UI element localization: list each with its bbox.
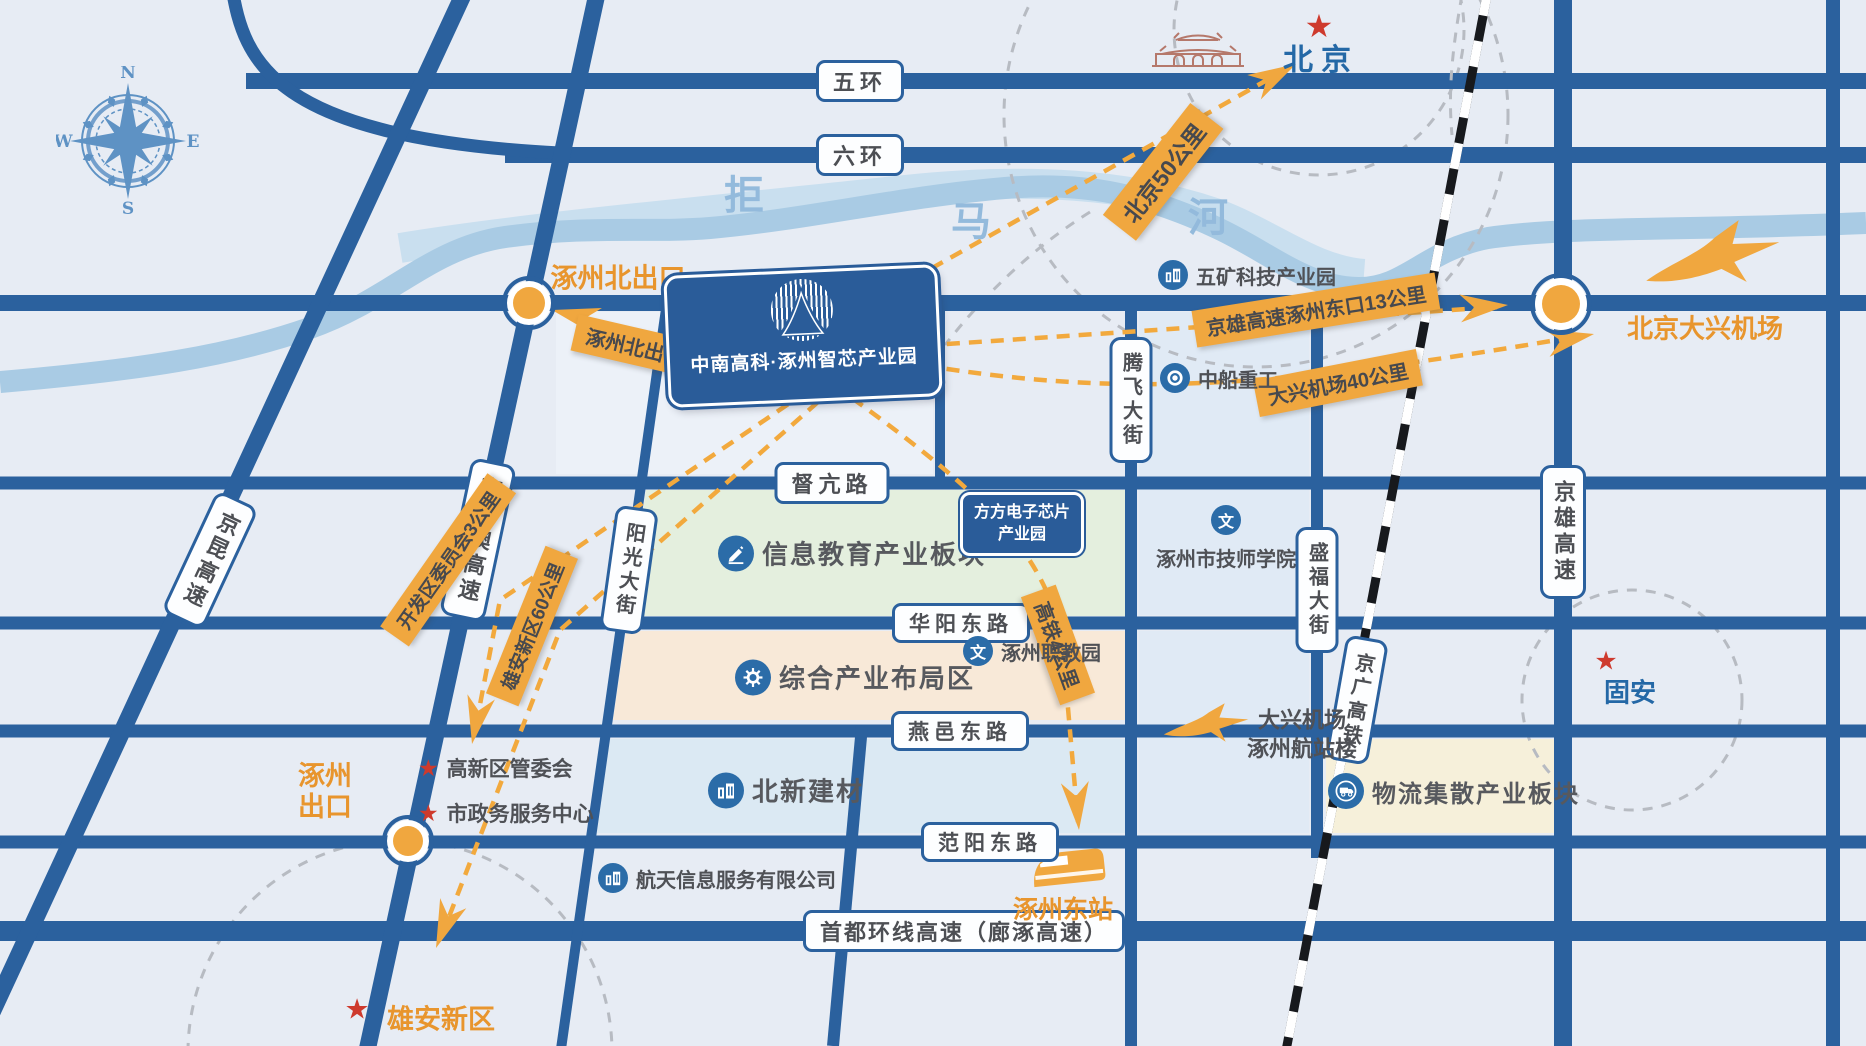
place-zhuozhou-east-station: 涿州东站	[1013, 890, 1113, 926]
road-label-dukang: 督亢路	[774, 462, 889, 504]
campus-name: 中南高科·涿州智芯产业园	[690, 341, 918, 378]
building-icon	[598, 863, 628, 893]
river-label-char2: 马	[951, 189, 991, 247]
shizhengwu-star-icon: ★	[418, 800, 439, 827]
place-zhuozhou-exit: 涿州出口	[298, 761, 352, 823]
fangfang-line1: 方方电子芯片	[963, 502, 1081, 524]
compass-east: E	[187, 132, 200, 152]
building-icon	[1158, 260, 1188, 290]
road-label-fanyang: 范阳东路	[921, 822, 1059, 862]
road-label-shengfu: 盛福大街	[1296, 527, 1339, 653]
tiananmen-icon	[1152, 33, 1244, 66]
poi-hangtian-label: 航天信息服务有限公司	[636, 864, 836, 893]
ship-industry-icon	[1160, 363, 1190, 393]
road-label-tengfei: 腾飞大街	[1110, 337, 1153, 463]
place-guan: 固安	[1604, 673, 1656, 710]
poi-zhongchuan: 中船重工	[1160, 363, 1278, 393]
river-label-char3: 河	[1188, 185, 1228, 243]
gaoxin-star-icon: ★	[418, 755, 439, 782]
poi-terminal-line1: 大兴机场	[1258, 706, 1346, 735]
map-base-layer	[0, 0, 1866, 1046]
place-daxing-airport: 北京大兴机场	[1627, 309, 1783, 346]
education-icon	[718, 535, 754, 571]
compass-south: S	[122, 199, 134, 216]
poi-airport-terminal: 大兴机场 涿州航站楼	[1247, 706, 1357, 763]
place-beijing: 北京	[1283, 35, 1359, 79]
poi-hangtian: 航天信息服务有限公司	[598, 863, 836, 893]
zone-info-education-label: 信息教育产业板块	[762, 535, 986, 572]
poi-zhijiao-park: 文 涿州职教园	[963, 636, 1101, 666]
gear-icon	[735, 659, 771, 695]
poi-city-service-center: ★ 市政务服务中心	[418, 798, 594, 828]
poi-wukuang: 五矿科技产业园	[1158, 260, 1336, 290]
zone-logistics-label: 物流集散产业板块	[1372, 774, 1580, 809]
river-label-char1: 拒	[724, 163, 764, 221]
xiongan-star: ★	[344, 993, 369, 1026]
building-icon	[708, 772, 744, 808]
compass-west: W	[56, 132, 73, 152]
poi-wukuang-label: 五矿科技产业园	[1196, 261, 1336, 290]
place-xiongan: 雄安新区	[387, 998, 495, 1037]
zone-comprehensive-label: 综合产业布局区	[779, 659, 975, 696]
junction-airport	[1532, 275, 1590, 333]
poi-zhongchuan-label: 中船重工	[1198, 364, 1278, 393]
fangfang-card: 方方电子芯片 产业园	[960, 492, 1084, 556]
zone-label-beixin: 北新建材	[708, 772, 864, 809]
road-label-liuhuan: 六环	[816, 134, 904, 176]
poi-gaoxin-label: 高新区管委会	[447, 753, 573, 783]
zone-label-info-education: 信息教育产业板块	[718, 535, 986, 572]
road-label-wuhuan: 五环	[816, 60, 904, 102]
compass-north: N	[120, 66, 136, 83]
road-label-yanyi: 燕邑东路	[891, 711, 1029, 751]
junction-zhuozhou-north-exit	[504, 278, 554, 328]
fangfang-line2: 产业园	[963, 524, 1081, 546]
zone-beixin-label: 北新建材	[752, 772, 864, 809]
campus-logo	[770, 278, 835, 343]
poi-gaoxin-committee: ★ 高新区管委会	[418, 753, 573, 783]
compass-rose: N S E W	[56, 66, 200, 216]
zone-label-comprehensive: 综合产业布局区	[735, 659, 975, 696]
location-map: N S E W 拒 马 河 五环 六环 花田路 督亢路 华阳东路 燕邑东路 范阳…	[0, 0, 1866, 1046]
truck-icon	[1328, 773, 1364, 809]
campus-card: 中南高科·涿州智芯产业园	[663, 264, 942, 408]
poi-terminal-line2: 涿州航站楼	[1247, 735, 1357, 764]
zone-label-logistics: 物流集散产业板块	[1328, 773, 1580, 809]
road-label-jingxiong: 京雄高速	[1540, 465, 1586, 599]
school-icon: 文	[1211, 505, 1241, 535]
poi-zhijiao-label: 涿州职教园	[1001, 637, 1101, 666]
poi-shizhengwu-label: 市政务服务中心	[447, 798, 594, 828]
poi-jishi-label: 涿州市技师学院	[1156, 543, 1296, 572]
poi-jishi-college: 文 涿州市技师学院	[1156, 505, 1296, 572]
